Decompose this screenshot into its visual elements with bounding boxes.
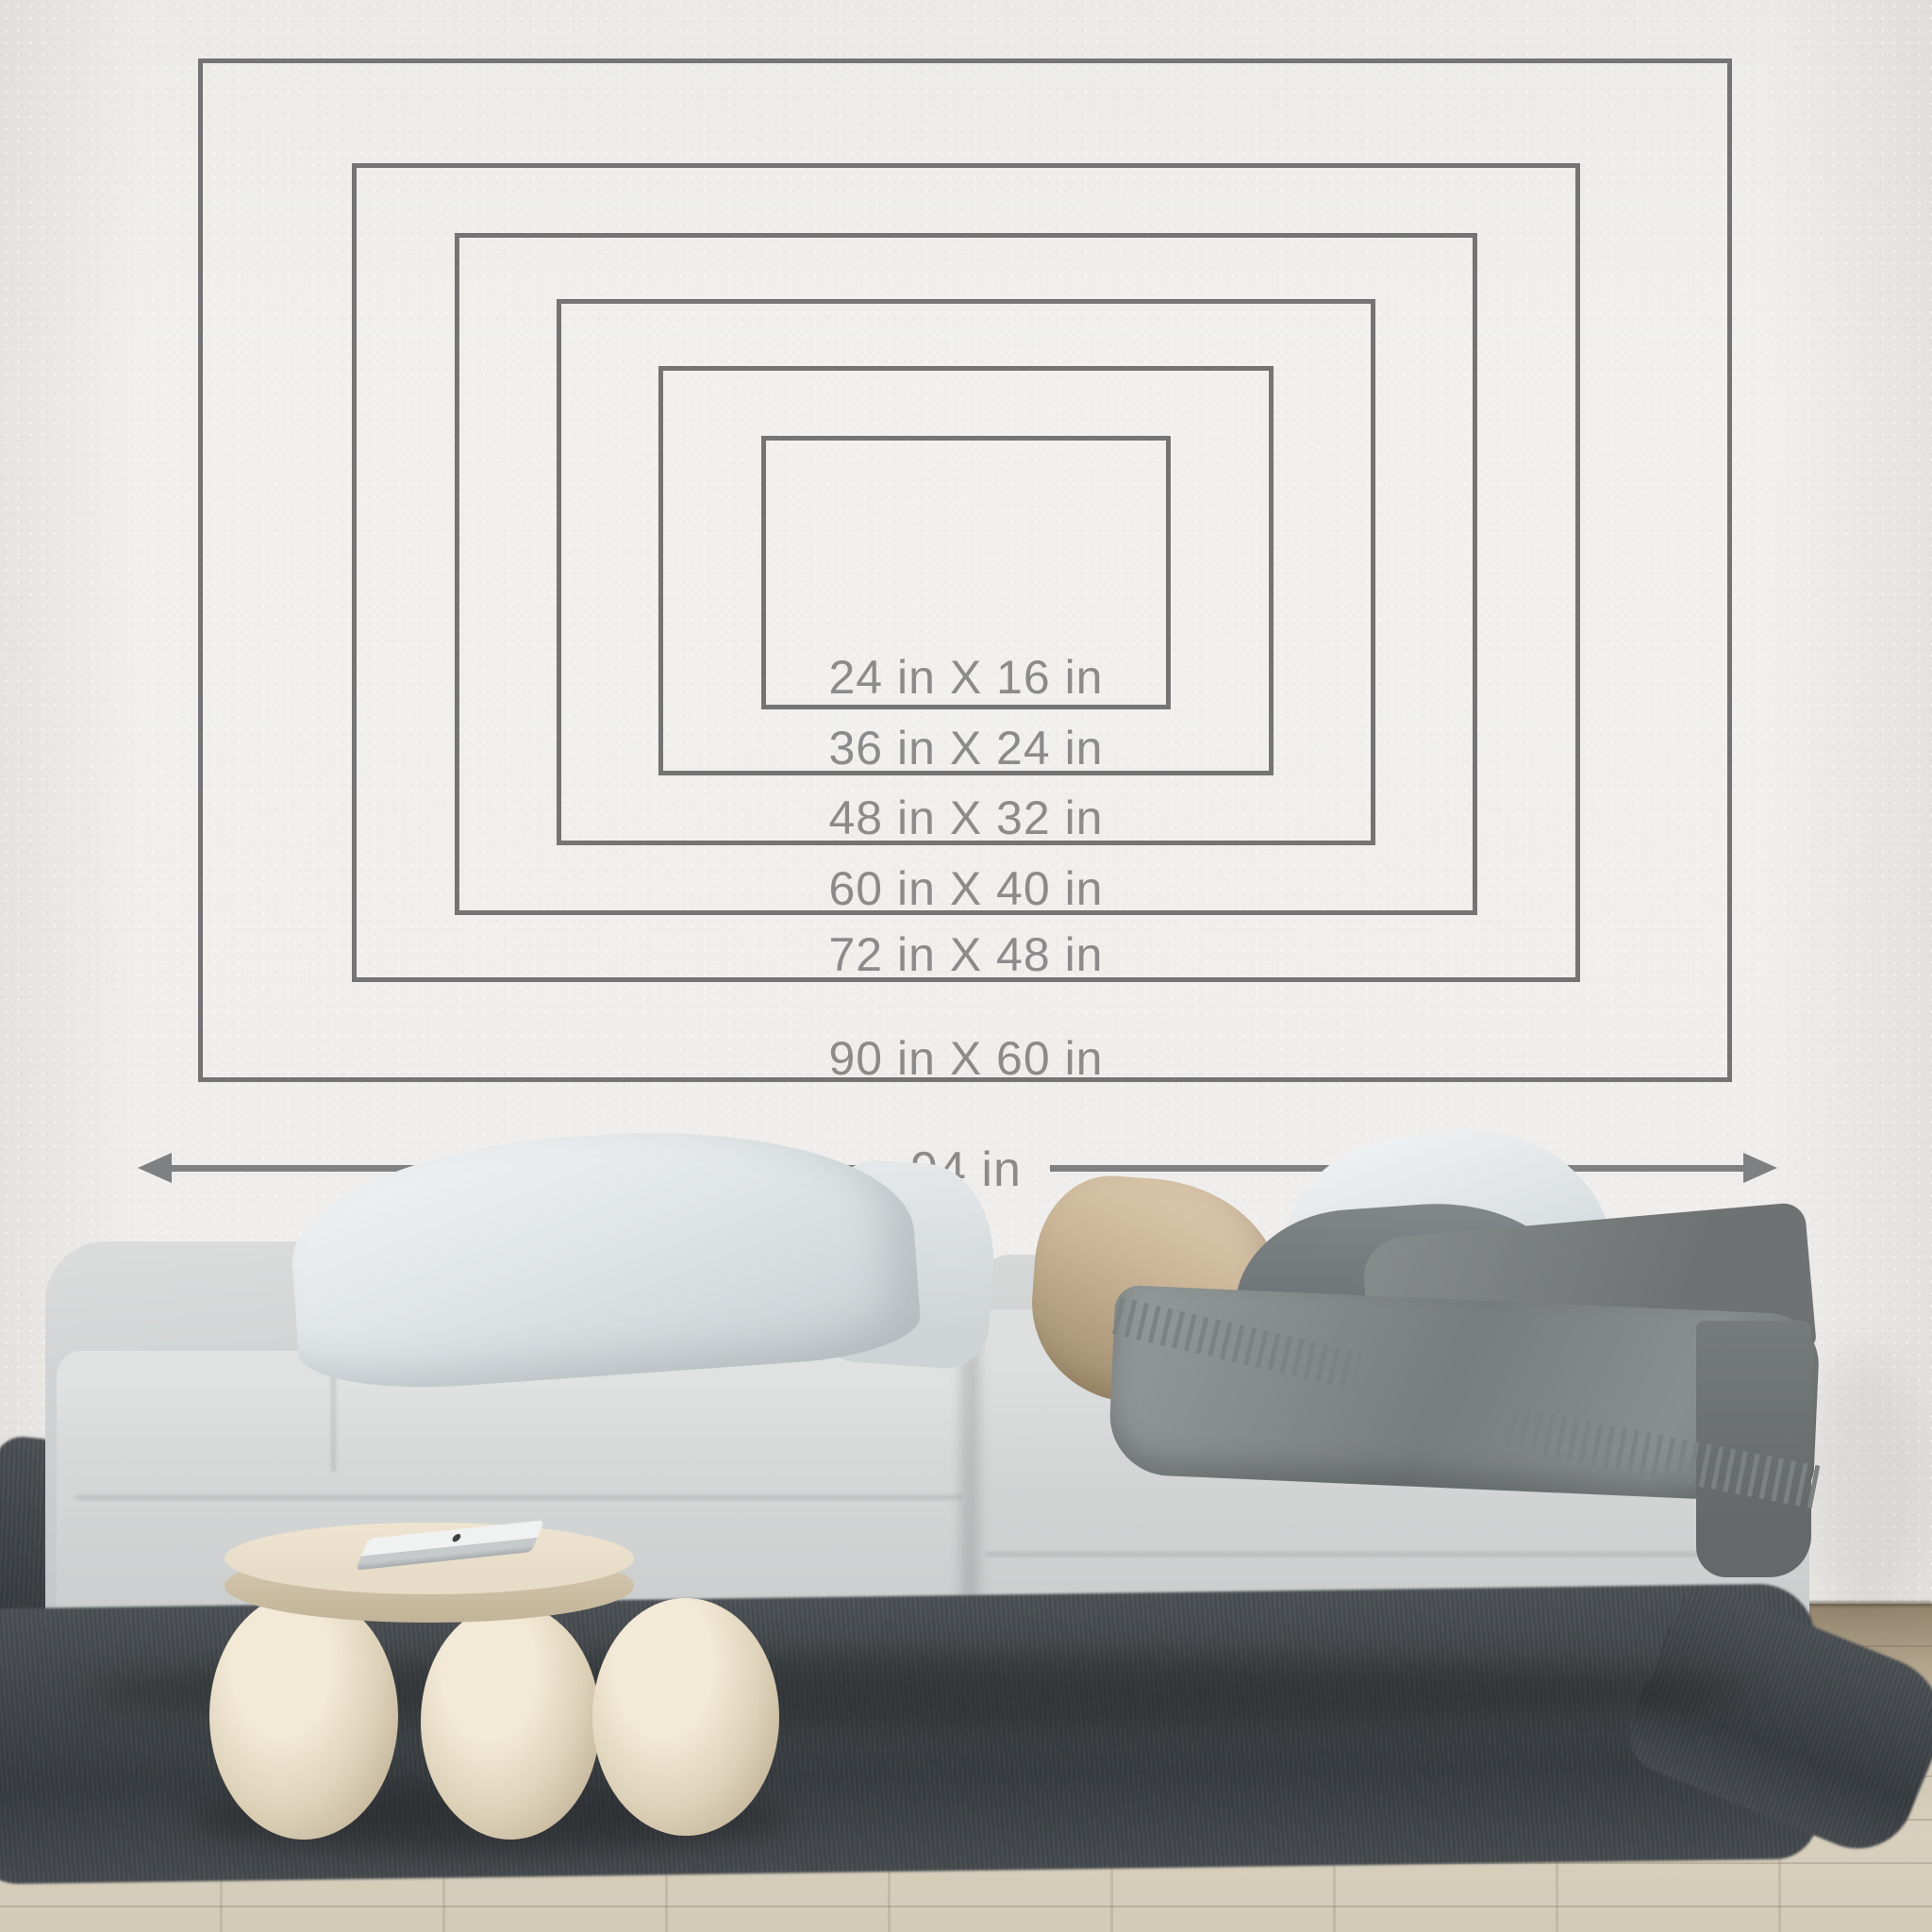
size-label-72x48: 72 in X 48 in [0,926,1932,983]
table-leg-ball-left [209,1592,398,1840]
size-label-36x24: 36 in X 24 in [0,720,1932,776]
wall-art-size-chart-mockup: 24 in X 16 in 36 in X 24 in 48 in X 32 i… [0,0,1932,1932]
size-label-24x16: 24 in X 16 in [0,649,1932,706]
sofa-seam-right [986,1553,1797,1556]
sofa-seam-left [75,1496,962,1499]
size-label-48x32: 48 in X 32 in [0,790,1932,846]
sofa-wall-shadow [1800,1349,1923,1623]
size-label-90x60: 90 in X 60 in [0,1030,1932,1087]
table-leg-ball-right [592,1598,779,1836]
table-leg-ball-middle [421,1604,600,1840]
size-label-60x40: 60 in X 40 in [0,860,1932,917]
laptop-logo-dot [451,1534,461,1542]
